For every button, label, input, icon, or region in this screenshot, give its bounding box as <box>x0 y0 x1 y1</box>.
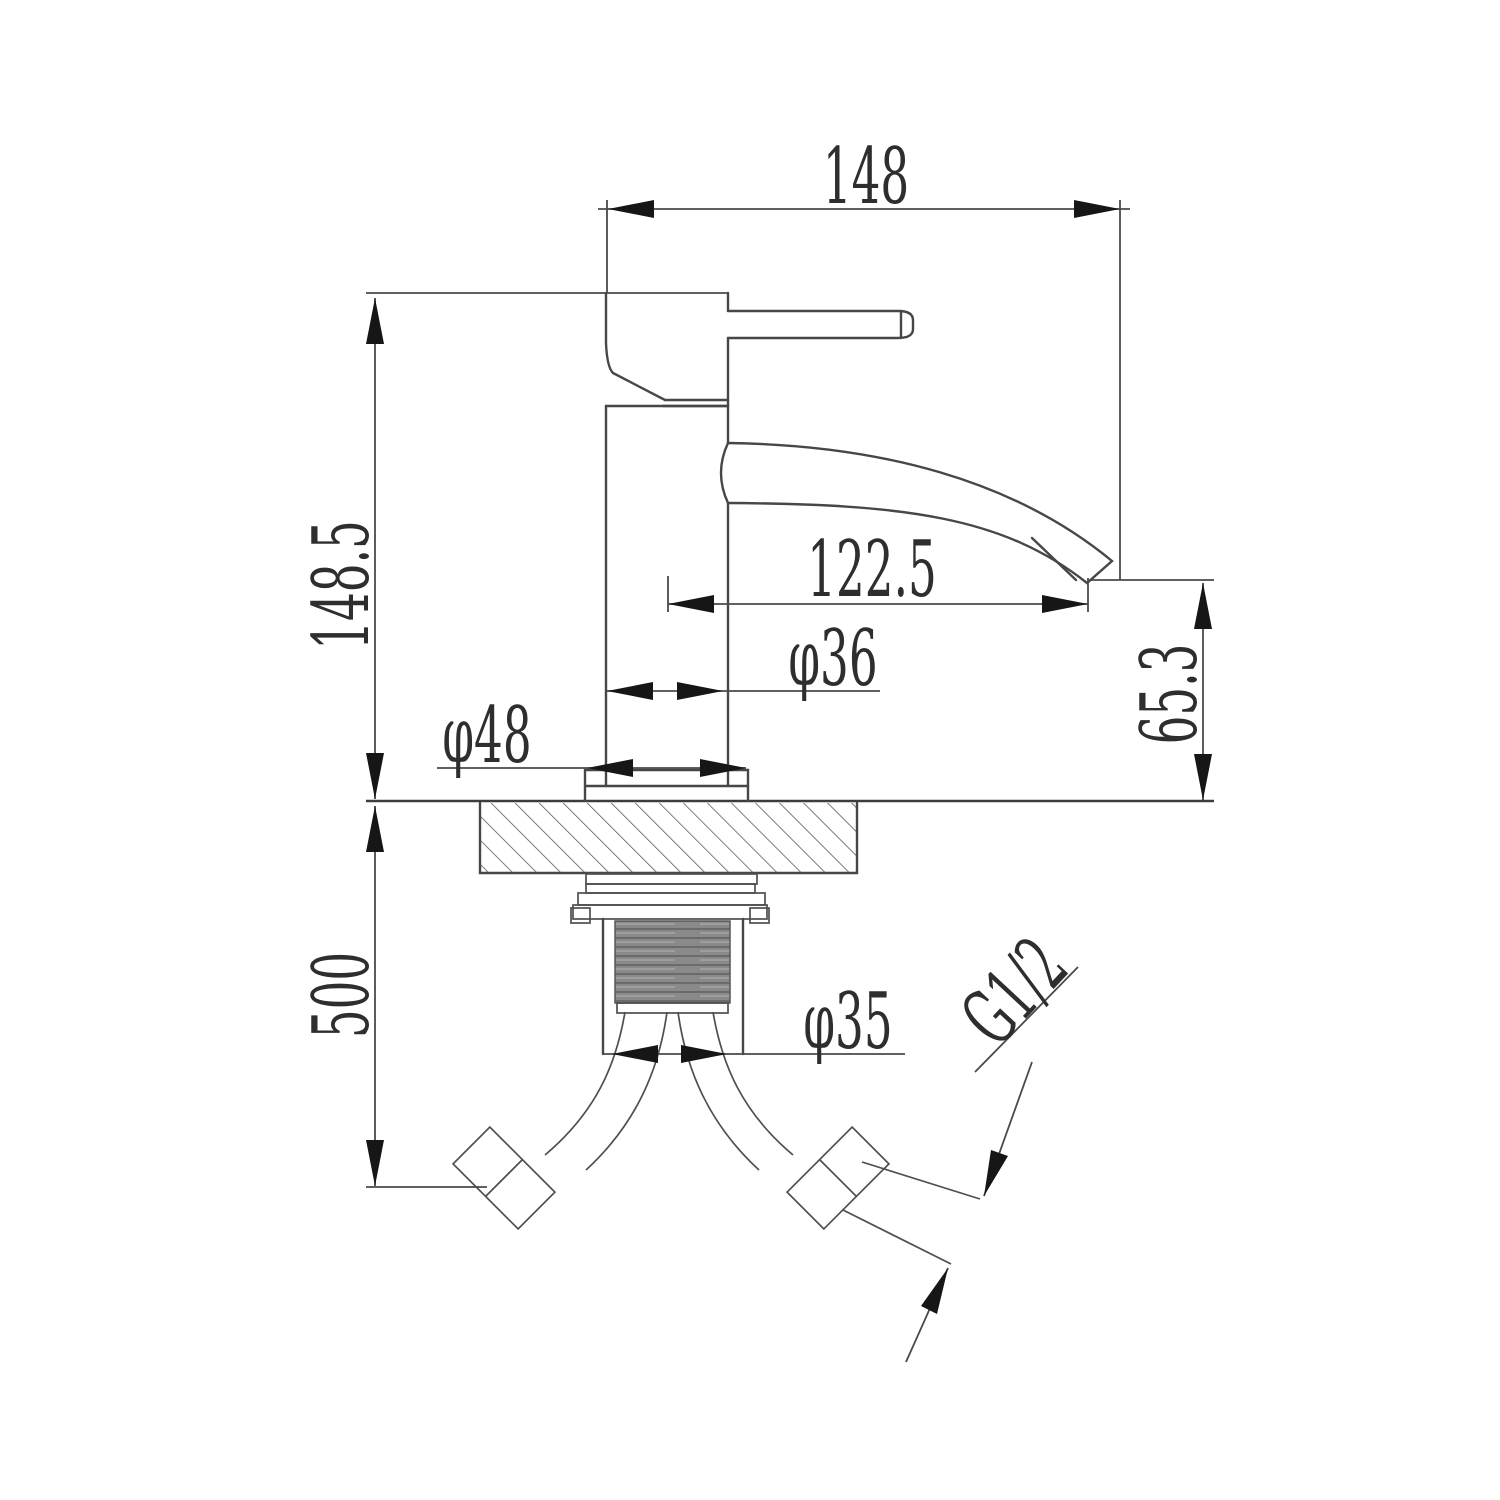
flexible-hoses <box>453 1012 980 1264</box>
dim-65-3-arrow-top <box>1194 583 1212 629</box>
technical-drawing-canvas: 148 148.5 500 122.5 φ36 φ48 <box>0 0 1500 1500</box>
dim-148-5-arrow-bottom <box>366 753 384 799</box>
deck-hatch-slab <box>480 803 857 873</box>
dimension-body-diameter: φ36 <box>607 614 880 705</box>
dimension-flange-diameter: φ48 <box>437 691 746 782</box>
dim-phi36-label: φ36 <box>788 614 877 705</box>
dimension-spout-reach: 122.5 <box>668 525 1088 616</box>
washer-plate-1 <box>586 874 757 884</box>
handle-lever <box>728 311 913 338</box>
under-deck-mounting <box>571 874 769 1054</box>
body-right-edge <box>721 406 728 786</box>
right-hose-connector <box>787 1127 889 1229</box>
dim-148-5-arrow-top <box>366 298 384 344</box>
dim-500-arrow-bottom <box>366 1140 384 1186</box>
lock-nut <box>573 905 767 919</box>
threaded-shank <box>615 921 730 1003</box>
dim-phi48-label: φ48 <box>442 691 531 782</box>
shank-collar-band <box>617 1003 728 1013</box>
dim-148-label: 148 <box>823 132 909 223</box>
left-hose-connector <box>453 1127 555 1229</box>
dim-phi48-arrow-left <box>587 759 633 777</box>
handle-cap-left-edge <box>606 293 665 400</box>
faucet-dimension-drawing: 148 148.5 500 122.5 φ36 φ48 <box>0 0 1500 1500</box>
callout-thread-spec: G1/2 <box>906 922 1085 1362</box>
right-hose-end-lower-wall <box>843 1210 951 1264</box>
dim-phi35-arrow-right <box>681 1045 727 1063</box>
dim-phi36-arrow-right <box>677 682 723 700</box>
dim-148-arrow-left <box>608 200 654 218</box>
g12-leader-arrow-lower <box>921 1268 948 1314</box>
dim-phi36-arrow-left <box>607 682 653 700</box>
countertop-deck <box>366 801 1214 873</box>
right-hose-end-upper-wall <box>862 1162 980 1199</box>
dim-phi48-arrow-right <box>700 759 746 777</box>
dimension-hose-drop: 500 <box>297 806 487 1187</box>
dim-65-3-label: 65.3 <box>1125 644 1216 745</box>
friction-washer <box>578 893 765 905</box>
dim-phi35-arrow-left <box>612 1045 658 1063</box>
spout-aerator-joint-line <box>1032 538 1076 580</box>
dimension-overall-width: 148 <box>598 132 1130 580</box>
dim-122-5-arrow-right <box>1042 595 1088 613</box>
right-hose-outer-wall <box>713 1012 793 1155</box>
dim-65-3-arrow-bottom <box>1194 754 1212 800</box>
dim-122-5-label: 122.5 <box>807 525 937 616</box>
dim-148-arrow-right <box>1074 200 1120 218</box>
dim-122-5-arrow-left <box>668 595 714 613</box>
left-hose-outer-wall <box>545 1012 625 1155</box>
g12-leader-arrow-upper <box>984 1150 1008 1196</box>
dim-500-arrow-top <box>366 806 384 852</box>
dim-500-label: 500 <box>297 952 388 1038</box>
dim-148-5-label: 148.5 <box>297 520 388 650</box>
dimension-spout-height: 65.3 <box>1090 580 1216 800</box>
dim-phi35-label: φ35 <box>803 977 892 1068</box>
washer-plate-2 <box>586 884 755 893</box>
g12-label: G1/2 <box>945 922 1086 1063</box>
